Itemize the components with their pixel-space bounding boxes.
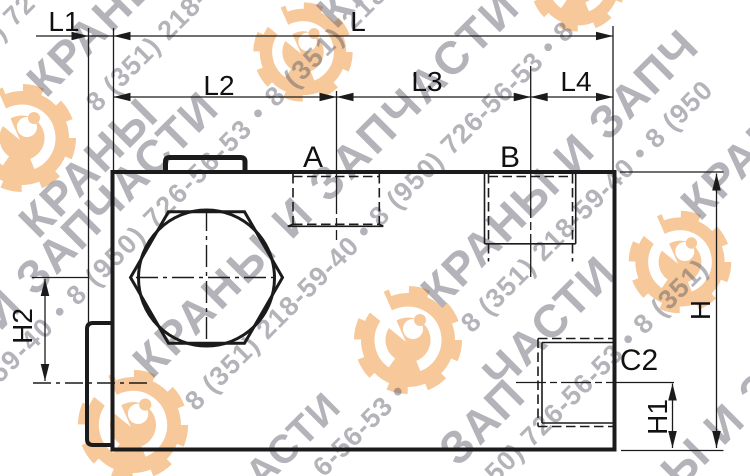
- svg-text:A: A: [303, 141, 323, 174]
- svg-text:B: B: [500, 141, 520, 174]
- svg-text:L4: L4: [560, 66, 591, 97]
- svg-text:L: L: [350, 6, 366, 37]
- svg-text:C2: C2: [620, 344, 658, 377]
- svg-text:0) 72: 0) 72: [0, 0, 41, 56]
- svg-text:L1: L1: [48, 6, 79, 37]
- svg-text:L2: L2: [203, 70, 234, 101]
- svg-text:H2: H2: [7, 308, 38, 344]
- svg-text:L3: L3: [411, 66, 442, 97]
- svg-text:H: H: [685, 300, 716, 320]
- svg-text:H1: H1: [642, 399, 673, 435]
